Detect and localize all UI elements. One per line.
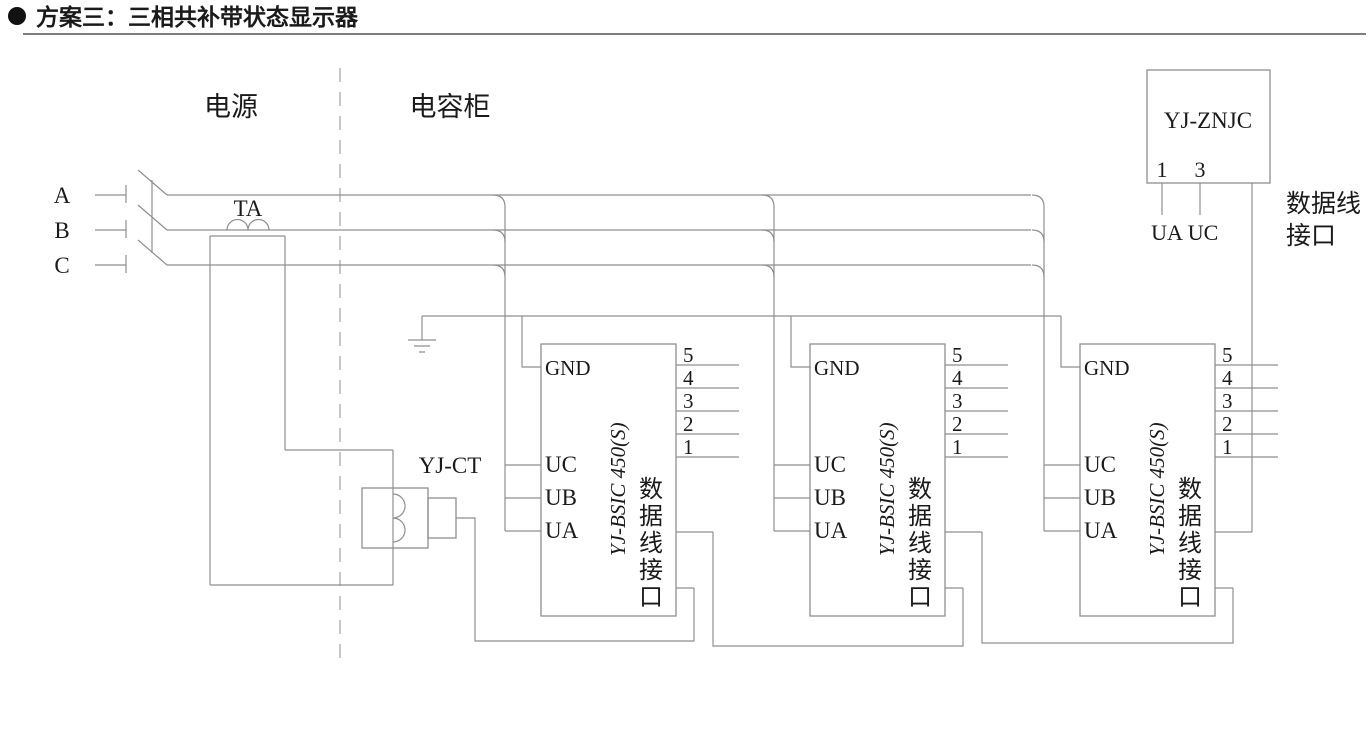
module-name-vertical: YJ-BSIC 450(S): [875, 422, 899, 556]
znjc-data-port-label-line1: 数据线: [1286, 190, 1361, 218]
ub-terminal-label: UB: [545, 485, 577, 510]
power-zone-label: 电源: [204, 92, 258, 122]
uc-terminal-label: UC: [814, 452, 846, 477]
pin-3-label: 3: [683, 389, 694, 413]
bsic-module: GND UC UB UA YJ-BSIC 450(S) 5 4 3 2 1 数 …: [762, 195, 1008, 616]
bullet-icon: [8, 7, 26, 25]
bsic-module: GND UC UB UA YJ-BSIC 450(S) 5 4 3 2 1 数 …: [1032, 195, 1278, 616]
pin-3-label: 3: [1222, 389, 1233, 413]
gnd-input-wire: [522, 316, 541, 367]
module-name-vertical: YJ-BSIC 450(S): [606, 422, 630, 556]
znjc-pin1-label: 1: [1157, 157, 1168, 182]
page: 方案三：三相共补带状态显示器 电源 电容柜 A B C TA YJ-CT: [0, 0, 1368, 753]
data-port-label-vertical: 数 据 线 接 口: [908, 476, 932, 611]
svg-text:接: 接: [908, 557, 932, 584]
svg-text:据: 据: [908, 503, 932, 530]
page-title: 方案三：三相共补带状态显示器: [36, 4, 359, 30]
znjc-data-port-label-line2: 接口: [1286, 222, 1336, 250]
ua-terminal-label: UA: [814, 518, 848, 543]
voltage-input-stubs: [1044, 465, 1080, 531]
header: 方案三：三相共补带状态显示器: [8, 4, 1366, 34]
pin-4-label: 4: [1222, 366, 1233, 390]
pin-1-label: 1: [1222, 435, 1233, 459]
pin-1-label: 1: [683, 435, 694, 459]
phase-tap-elbows: [1032, 195, 1044, 277]
pin-5-label: 5: [952, 343, 963, 367]
data-port-label-vertical: 数 据 线 接 口: [1178, 476, 1202, 611]
three-phase-switch: [95, 170, 1031, 273]
uc-terminal-label: UC: [1084, 452, 1116, 477]
ta-secondary-leads: [210, 236, 285, 585]
gnd-terminal-label: GND: [814, 356, 860, 380]
svg-text:口: 口: [639, 584, 663, 611]
pin-4-label: 4: [952, 366, 963, 390]
voltage-input-stubs: [505, 465, 541, 531]
module-name-vertical: YJ-BSIC 450(S): [1145, 422, 1169, 556]
svg-text:接: 接: [639, 557, 663, 584]
ct-coil-symbol: [393, 494, 405, 542]
yj-ct-label: YJ-CT: [419, 453, 482, 478]
gnd-terminal-label: GND: [545, 356, 591, 380]
ct-loop-wires: [210, 450, 393, 585]
pin-2-label: 2: [952, 412, 963, 436]
znjc-pin-leads: [1162, 183, 1200, 215]
ua-terminal-label: UA: [1084, 518, 1118, 543]
znjc-pin3-label: 3: [1195, 157, 1206, 182]
ground-bus: [408, 316, 1061, 352]
svg-text:数: 数: [908, 476, 932, 503]
ground-icon: [408, 316, 436, 352]
pin-4-label: 4: [683, 366, 694, 390]
gnd-terminal-label: GND: [1084, 356, 1130, 380]
svg-text:据: 据: [639, 503, 663, 530]
yj-ct-sensor: YJ-CT: [210, 450, 481, 585]
svg-text:口: 口: [908, 584, 932, 611]
wiring-diagram: 方案三：三相共补带状态显示器 电源 电容柜 A B C TA YJ-CT: [0, 0, 1368, 753]
pin-5-label: 5: [683, 343, 694, 367]
znjc-uc-label: UC: [1188, 220, 1219, 245]
svg-text:据: 据: [1178, 503, 1202, 530]
znjc-unit: YJ-ZNJC 1 3 UA UC 数据线 接口: [1147, 70, 1361, 250]
svg-text:数: 数: [1178, 476, 1202, 503]
svg-text:线: 线: [908, 530, 932, 557]
svg-text:数: 数: [639, 476, 663, 503]
ta-transformer: TA: [210, 196, 285, 585]
phase-a-label: A: [54, 183, 71, 208]
data-chain-wires: [456, 183, 1252, 646]
pin-2-label: 2: [683, 412, 694, 436]
pin-3-label: 3: [952, 389, 963, 413]
svg-text:接: 接: [1178, 557, 1202, 584]
phase-b-label: B: [54, 218, 69, 243]
gnd-input-wire: [791, 316, 810, 367]
gnd-input-wire: [1061, 316, 1080, 367]
phase-labels: A B C: [54, 183, 71, 278]
ta-label: TA: [234, 196, 263, 221]
pin-2-label: 2: [1222, 412, 1233, 436]
phase-c-label: C: [54, 253, 69, 278]
voltage-input-stubs: [774, 465, 810, 531]
znjc-name-label: YJ-ZNJC: [1164, 108, 1252, 133]
znjc-ua-label: UA: [1151, 220, 1183, 245]
ub-terminal-label: UB: [814, 485, 846, 510]
svg-text:口: 口: [1178, 584, 1202, 611]
capacitor-zone-label: 电容柜: [410, 92, 491, 122]
ct-terminal-box: [428, 498, 456, 538]
ta-coil: [227, 220, 269, 231]
svg-text:线: 线: [639, 530, 663, 557]
svg-text:线: 线: [1178, 530, 1202, 557]
uc-terminal-label: UC: [545, 452, 577, 477]
pin-1-label: 1: [952, 435, 963, 459]
pin-5-label: 5: [1222, 343, 1233, 367]
bsic-module: GND UC UB UA YJ-BSIC 450(S) 5 4 3 2 1 数 …: [493, 195, 739, 616]
ua-terminal-label: UA: [545, 518, 579, 543]
ub-terminal-label: UB: [1084, 485, 1116, 510]
data-port-label-vertical: 数 据 线 接 口: [639, 476, 663, 611]
